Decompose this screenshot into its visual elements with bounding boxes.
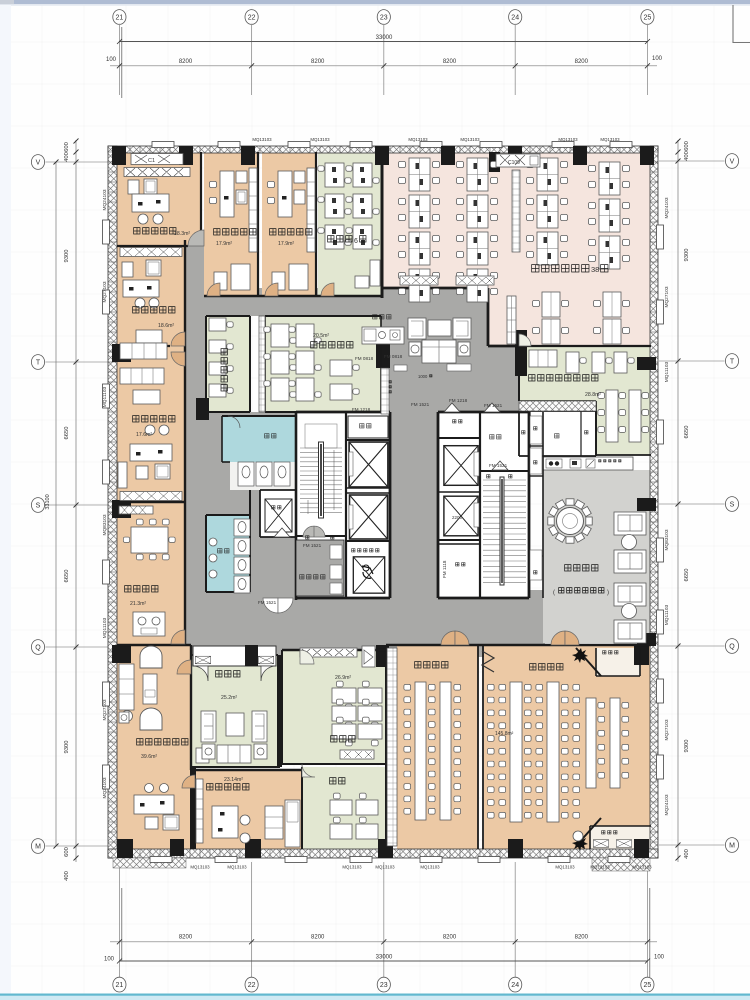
svg-text:28.8m²: 28.8m² bbox=[585, 392, 601, 398]
svg-text:MQ13103: MQ13103 bbox=[600, 137, 620, 142]
svg-text:38: 38 bbox=[591, 265, 599, 274]
svg-text:8200: 8200 bbox=[575, 59, 589, 65]
svg-text:MQ13103: MQ13103 bbox=[632, 865, 652, 870]
svg-text:24: 24 bbox=[511, 15, 519, 22]
svg-text:MQ83103: MQ83103 bbox=[664, 529, 670, 550]
svg-text:25: 25 bbox=[644, 15, 652, 22]
svg-text:6650: 6650 bbox=[684, 426, 690, 439]
svg-text:9300: 9300 bbox=[684, 740, 690, 753]
svg-text:V: V bbox=[730, 159, 735, 166]
svg-text:S: S bbox=[36, 503, 41, 510]
svg-text:FM 1521: FM 1521 bbox=[489, 463, 508, 468]
svg-text:9300: 9300 bbox=[684, 249, 690, 262]
svg-text:MQ13103: MQ13103 bbox=[252, 137, 272, 142]
svg-text:6650: 6650 bbox=[64, 570, 70, 583]
svg-text:MQ13103: MQ13103 bbox=[590, 865, 610, 870]
svg-text:MQ13103: MQ13103 bbox=[375, 865, 395, 870]
svg-text:100: 100 bbox=[654, 955, 665, 961]
svg-text:600: 600 bbox=[64, 142, 70, 152]
svg-text:MQ11103: MQ11103 bbox=[102, 617, 108, 638]
svg-text:600: 600 bbox=[64, 847, 70, 857]
svg-text:FM 1521: FM 1521 bbox=[258, 600, 277, 605]
svg-text:8200: 8200 bbox=[311, 935, 325, 941]
svg-text:MQ83103: MQ83103 bbox=[102, 514, 108, 535]
svg-text:33100: 33100 bbox=[45, 494, 51, 509]
svg-text:6: 6 bbox=[354, 238, 358, 245]
svg-text:FM 1118: FM 1118 bbox=[442, 560, 447, 578]
svg-text:100: 100 bbox=[104, 957, 115, 963]
svg-text:400: 400 bbox=[684, 849, 690, 859]
svg-text:FM 1218: FM 1218 bbox=[352, 407, 371, 412]
svg-text:FM 1521: FM 1521 bbox=[303, 543, 322, 548]
svg-text:23: 23 bbox=[380, 982, 388, 989]
svg-text:MQ11103: MQ11103 bbox=[664, 361, 670, 382]
svg-text:M: M bbox=[35, 844, 41, 851]
svg-text:MQ11103: MQ11103 bbox=[664, 604, 670, 625]
svg-text:MQ13103: MQ13103 bbox=[190, 865, 210, 870]
svg-text:MQ11103: MQ11103 bbox=[102, 386, 108, 407]
svg-text:MQ27103: MQ27103 bbox=[664, 719, 670, 740]
svg-text:20.5m²: 20.5m² bbox=[313, 333, 329, 339]
svg-text:MQ24103: MQ24103 bbox=[664, 794, 670, 815]
svg-text:2200: 2200 bbox=[452, 515, 463, 520]
svg-text:8200: 8200 bbox=[179, 935, 193, 941]
svg-text:FM 1521: FM 1521 bbox=[484, 403, 503, 408]
svg-text:9300: 9300 bbox=[64, 250, 70, 263]
svg-text:FM 0818: FM 0818 bbox=[384, 354, 403, 359]
svg-text:145.8m²: 145.8m² bbox=[495, 731, 514, 737]
svg-text:MQ13103: MQ13103 bbox=[420, 865, 440, 870]
svg-text:8200: 8200 bbox=[179, 59, 193, 65]
svg-text:MQ13103: MQ13103 bbox=[460, 137, 480, 142]
svg-text:MQ13103: MQ13103 bbox=[227, 865, 247, 870]
svg-text:MQ13103: MQ13103 bbox=[555, 865, 575, 870]
svg-text:MQ13103: MQ13103 bbox=[408, 137, 428, 142]
svg-text:6650: 6650 bbox=[64, 427, 70, 440]
svg-text:100: 100 bbox=[652, 56, 663, 62]
svg-text:8200: 8200 bbox=[311, 59, 325, 65]
svg-text:23: 23 bbox=[380, 15, 388, 22]
svg-text:T: T bbox=[730, 359, 735, 366]
svg-text:18.3m²: 18.3m² bbox=[174, 231, 190, 237]
svg-text:MQ13103: MQ13103 bbox=[558, 137, 578, 142]
svg-text:1000: 1000 bbox=[418, 374, 428, 379]
svg-text:400: 400 bbox=[684, 151, 690, 161]
svg-text:S: S bbox=[730, 502, 735, 509]
svg-text:FM 0818: FM 0818 bbox=[355, 356, 374, 361]
svg-text:MQ27103: MQ27103 bbox=[102, 699, 108, 720]
svg-text:MQ27103: MQ27103 bbox=[664, 286, 670, 307]
svg-text:MQ24103: MQ24103 bbox=[664, 197, 670, 218]
svg-text:8200: 8200 bbox=[443, 935, 457, 941]
svg-text:MQ24103: MQ24103 bbox=[102, 777, 108, 798]
svg-text:22: 22 bbox=[248, 15, 256, 22]
svg-text:21: 21 bbox=[116, 982, 124, 989]
svg-text:MQ24103: MQ24103 bbox=[102, 189, 108, 210]
svg-text:6650: 6650 bbox=[684, 569, 690, 582]
svg-text:600: 600 bbox=[684, 141, 690, 151]
svg-text:M: M bbox=[729, 843, 735, 850]
svg-text:MQ27103: MQ27103 bbox=[102, 281, 108, 302]
svg-text:17.9m²: 17.9m² bbox=[216, 241, 232, 247]
svg-text:FM 1218: FM 1218 bbox=[449, 398, 468, 403]
svg-text:Q: Q bbox=[35, 645, 41, 652]
svg-text:17.9m²: 17.9m² bbox=[278, 241, 294, 247]
svg-text:): ) bbox=[607, 590, 609, 596]
svg-text:18.6m²: 18.6m² bbox=[158, 323, 174, 329]
svg-text:39.6m²: 39.6m² bbox=[141, 754, 157, 760]
svg-text:17.6m²: 17.6m² bbox=[136, 432, 152, 438]
svg-text:100: 100 bbox=[106, 57, 117, 63]
svg-text:(: ( bbox=[553, 590, 555, 596]
svg-text:24: 24 bbox=[511, 982, 519, 989]
svg-text:25: 25 bbox=[644, 982, 652, 989]
svg-text:33000: 33000 bbox=[376, 35, 393, 41]
svg-text:21: 21 bbox=[116, 15, 124, 22]
svg-text:33000: 33000 bbox=[376, 955, 393, 961]
svg-text:MQ13103: MQ13103 bbox=[342, 865, 362, 870]
svg-text:21.3m²: 21.3m² bbox=[130, 601, 146, 607]
svg-text:22: 22 bbox=[248, 982, 256, 989]
svg-text:26.9m²: 26.9m² bbox=[335, 675, 351, 681]
svg-text:23.14m²: 23.14m² bbox=[224, 777, 243, 783]
svg-text:C109: C109 bbox=[508, 160, 520, 166]
svg-text:400: 400 bbox=[64, 871, 70, 881]
svg-text:FM 1521: FM 1521 bbox=[411, 402, 430, 407]
svg-text:Q: Q bbox=[729, 644, 735, 651]
svg-text:T: T bbox=[36, 360, 41, 367]
svg-text:25.2m²: 25.2m² bbox=[221, 695, 237, 701]
svg-text:9300: 9300 bbox=[64, 741, 70, 754]
svg-text:8200: 8200 bbox=[443, 59, 457, 65]
svg-text:V: V bbox=[36, 160, 41, 167]
svg-text:400: 400 bbox=[64, 152, 70, 162]
svg-text:C1: C1 bbox=[148, 158, 155, 164]
svg-text:8200: 8200 bbox=[575, 935, 589, 941]
svg-text:MQ13103: MQ13103 bbox=[310, 137, 330, 142]
